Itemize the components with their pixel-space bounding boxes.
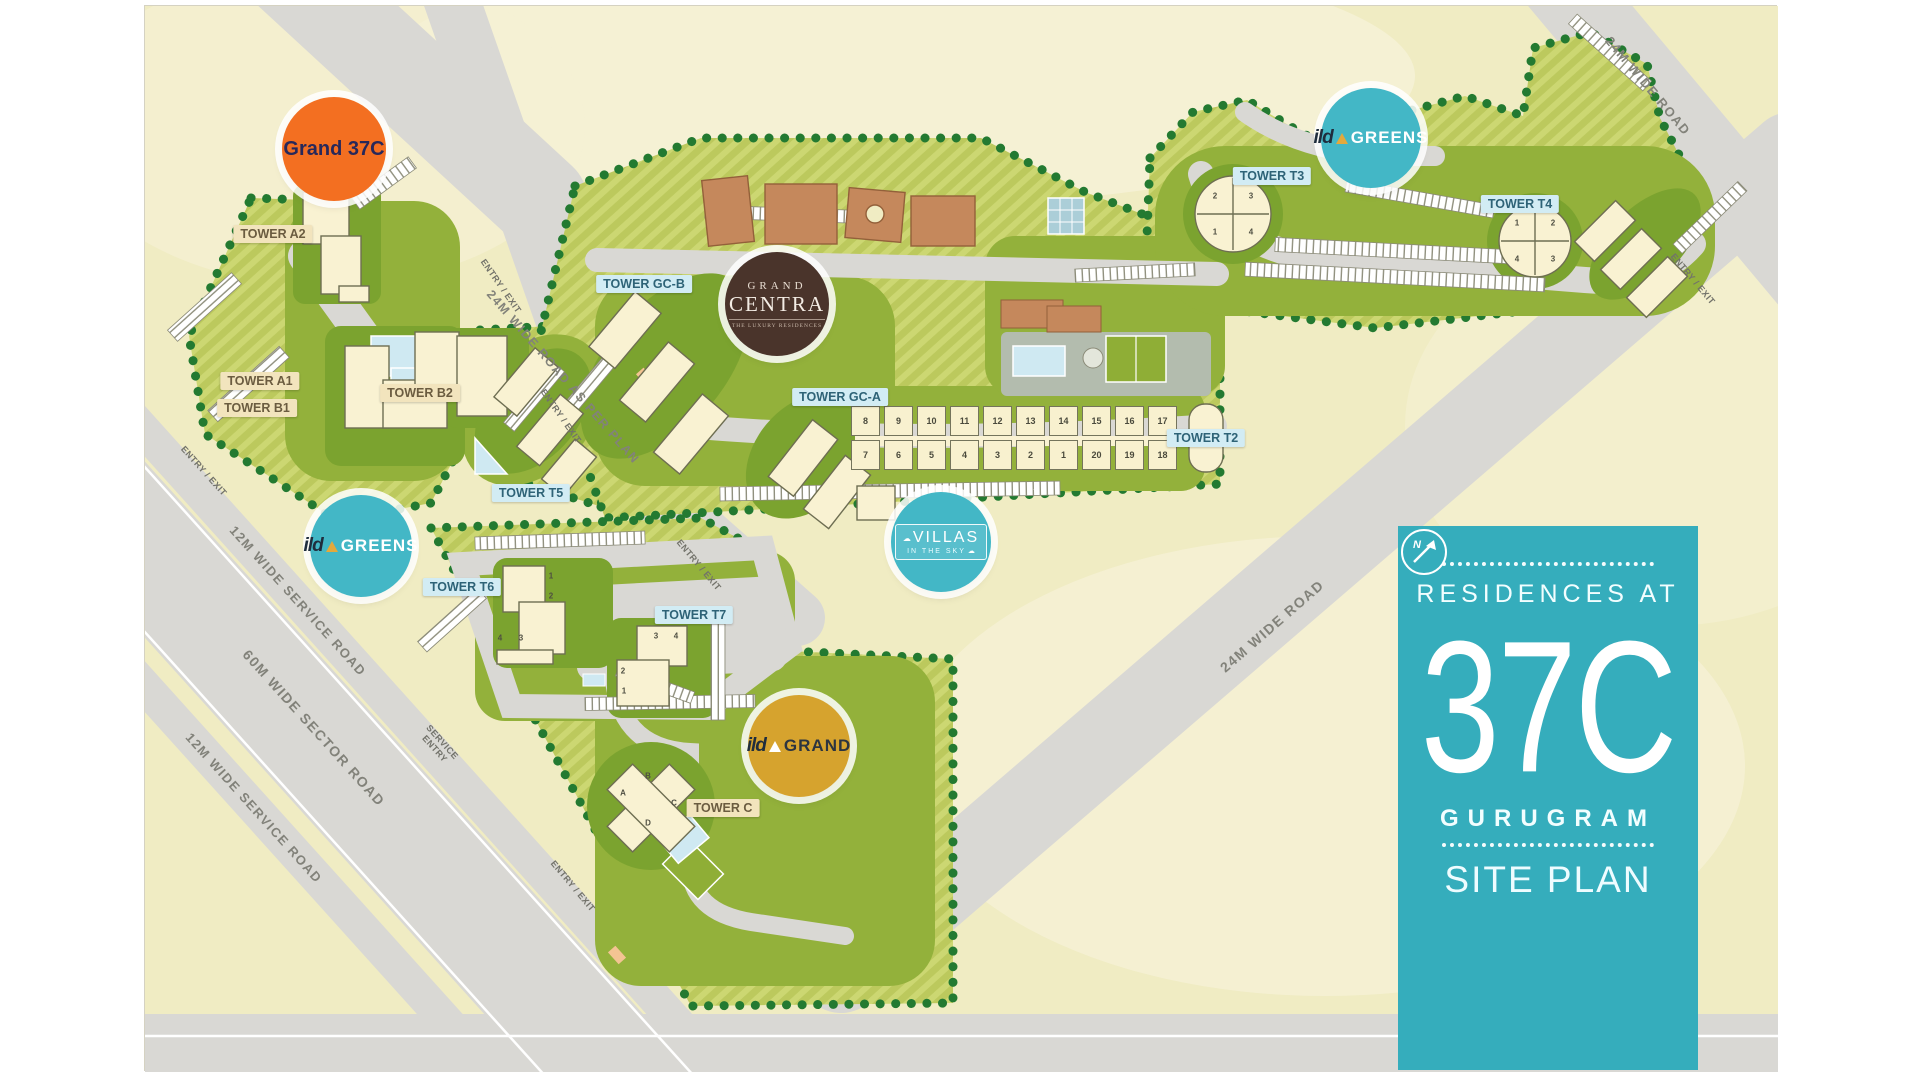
wing-number: 2 [549,592,553,601]
tower-label-c: TOWER C [687,799,760,817]
ild-logo-text: ild [304,535,323,557]
wing-number: 3 [1249,192,1253,201]
wing-letter: B [645,772,651,781]
villa-unit: 5 [917,440,946,470]
badge-villas-in-the-sky: ☁ VILLAS IN THE SKY ☁ [891,492,991,592]
greens-word: GREENS [341,536,419,556]
tower-label-b1: TOWER B1 [217,399,297,417]
in-the-sky-word: IN THE SKY [907,548,966,555]
badge-ild-greens-1: ild GREENS [310,495,412,597]
ild-logo-text: ild [747,735,766,757]
villa-unit: 12 [983,406,1012,436]
tower-label-t7: TOWER T7 [655,606,733,624]
wing-number: 3 [654,632,658,641]
villa-unit: 9 [884,406,913,436]
ild-logo-text: ild [1314,127,1333,149]
tower-label-gc-a: TOWER GC-A [792,388,888,406]
badge-ild-grand: ild GRAND [748,695,850,797]
wing-number: 1 [1515,219,1519,228]
wing-number: 2 [621,667,625,676]
villa-unit: 3 [983,440,1012,470]
badge-grand-37c: Grand 37C [282,97,386,201]
villas-block: 8 9 10 11 12 13 14 15 16 17 7 6 5 4 3 2 … [851,406,1177,470]
wing-number: 3 [1551,255,1555,264]
triangle-icon [1336,133,1348,144]
tower-label-t6: TOWER T6 [423,578,501,596]
wing-number: 2 [1213,192,1217,201]
grand-word: GRAND [784,736,851,756]
villa-unit: 13 [1016,406,1045,436]
greens-word: GREENS [1351,128,1429,148]
panel-title: SITE PLAN [1444,859,1651,901]
villas-inner-frame: ☁ VILLAS IN THE SKY ☁ [895,524,987,560]
dotted-divider [1442,562,1654,566]
villa-unit: 11 [950,406,979,436]
villa-unit: 4 [950,440,979,470]
tower-label-t4: TOWER T4 [1481,195,1559,213]
wing-number: 4 [1515,255,1519,264]
villa-unit: 14 [1049,406,1078,436]
wing-number: 4 [498,634,502,643]
villa-unit: 2 [1016,440,1045,470]
site-plan-map: 24M WIDE ROAD AS PER PLAN 12M WIDE SERVI… [144,5,1777,1071]
wing-number: 1 [549,572,553,581]
centra-line1: GRAND [747,280,806,292]
project-info-panel: RESIDENCES AT 37C GURUGRAM SITE PLAN N [1398,526,1698,1070]
cloud-icon: ☁ [968,547,975,555]
badge-grand-centra: GRAND CENTRA THE LUXURY RESIDENCES [725,252,829,356]
badge-grand-37c-text: Grand 37C [283,138,384,161]
triangle-icon [769,741,781,752]
villa-unit: 19 [1115,440,1144,470]
centra-tagline: THE LUXURY RESIDENCES [732,323,822,329]
villa-unit: 10 [917,406,946,436]
wing-number: 1 [622,687,626,696]
tower-label-gc-b: TOWER GC-B [596,275,692,293]
villa-unit: 20 [1082,440,1111,470]
badge-ild-greens-2: ild GREENS [1321,88,1421,188]
villa-unit: 1 [1049,440,1078,470]
panel-project-number: 37C [1421,614,1676,801]
wing-letter: C [671,799,677,808]
tower-label-a2: TOWER A2 [233,225,312,243]
wing-letter: D [645,819,651,828]
dotted-divider [1442,843,1654,847]
wing-number: 4 [674,632,678,641]
tower-label-t5: TOWER T5 [492,484,570,502]
villas-word: VILLAS [913,529,979,547]
villa-unit: 15 [1082,406,1111,436]
villa-unit: 8 [851,406,880,436]
wing-number: 1 [1213,228,1217,237]
villa-unit: 16 [1115,406,1144,436]
wing-number: 2 [1551,219,1555,228]
villa-unit: 7 [851,440,880,470]
wing-number: 4 [1249,228,1253,237]
tower-label-a1: TOWER A1 [220,372,299,390]
wing-letter: A [620,789,626,798]
cloud-icon: ☁ [903,534,911,543]
centra-line2: CENTRA [729,292,825,320]
tower-label-t3: TOWER T3 [1233,167,1311,185]
triangle-icon [326,541,338,552]
tower-label-t2: TOWER T2 [1167,429,1245,447]
compass-icon: N [1398,526,1450,578]
svg-text:N: N [1413,539,1422,551]
wing-number: 3 [519,634,523,643]
tower-label-b2: TOWER B2 [380,384,460,402]
villa-unit: 6 [884,440,913,470]
